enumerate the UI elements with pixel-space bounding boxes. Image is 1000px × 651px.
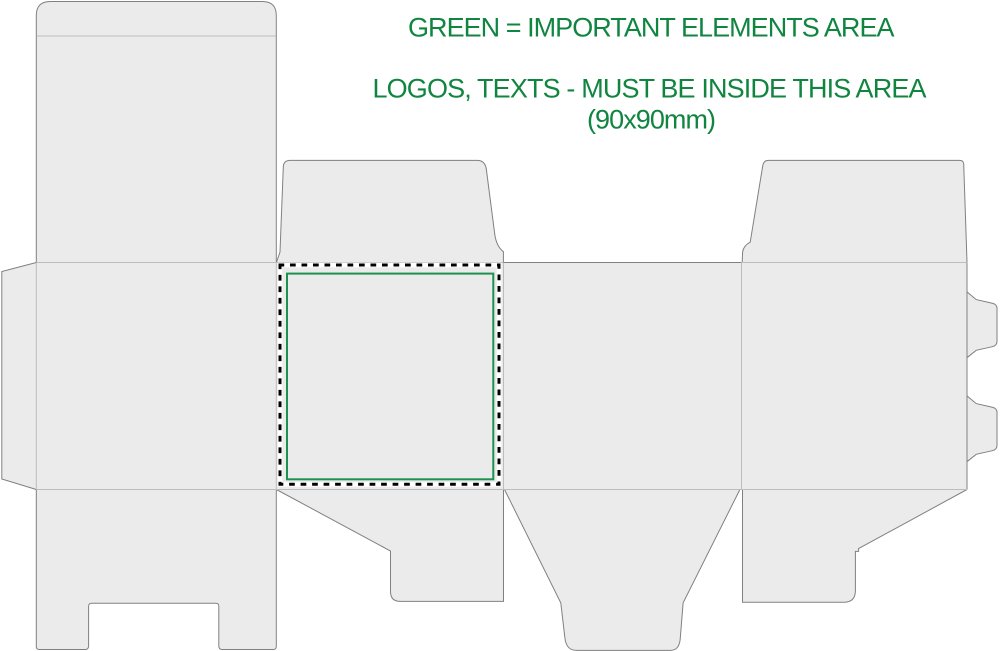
svg-text:(90x90mm): (90x90mm) <box>587 104 716 134</box>
svg-text:GREEN = IMPORTANT ELEMENTS ARE: GREEN = IMPORTANT ELEMENTS AREA <box>408 13 895 43</box>
svg-text:LOGOS, TEXTS - MUST BE INSIDE: LOGOS, TEXTS - MUST BE INSIDE THIS AREA <box>373 73 927 103</box>
